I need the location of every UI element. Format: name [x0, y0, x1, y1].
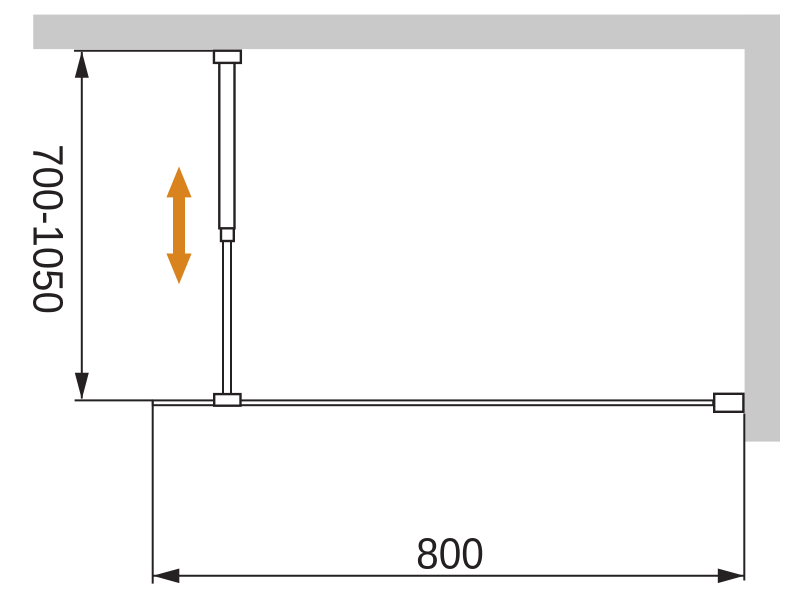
svg-text:800: 800: [416, 529, 484, 578]
svg-text:700-1050: 700-1050: [24, 144, 73, 314]
